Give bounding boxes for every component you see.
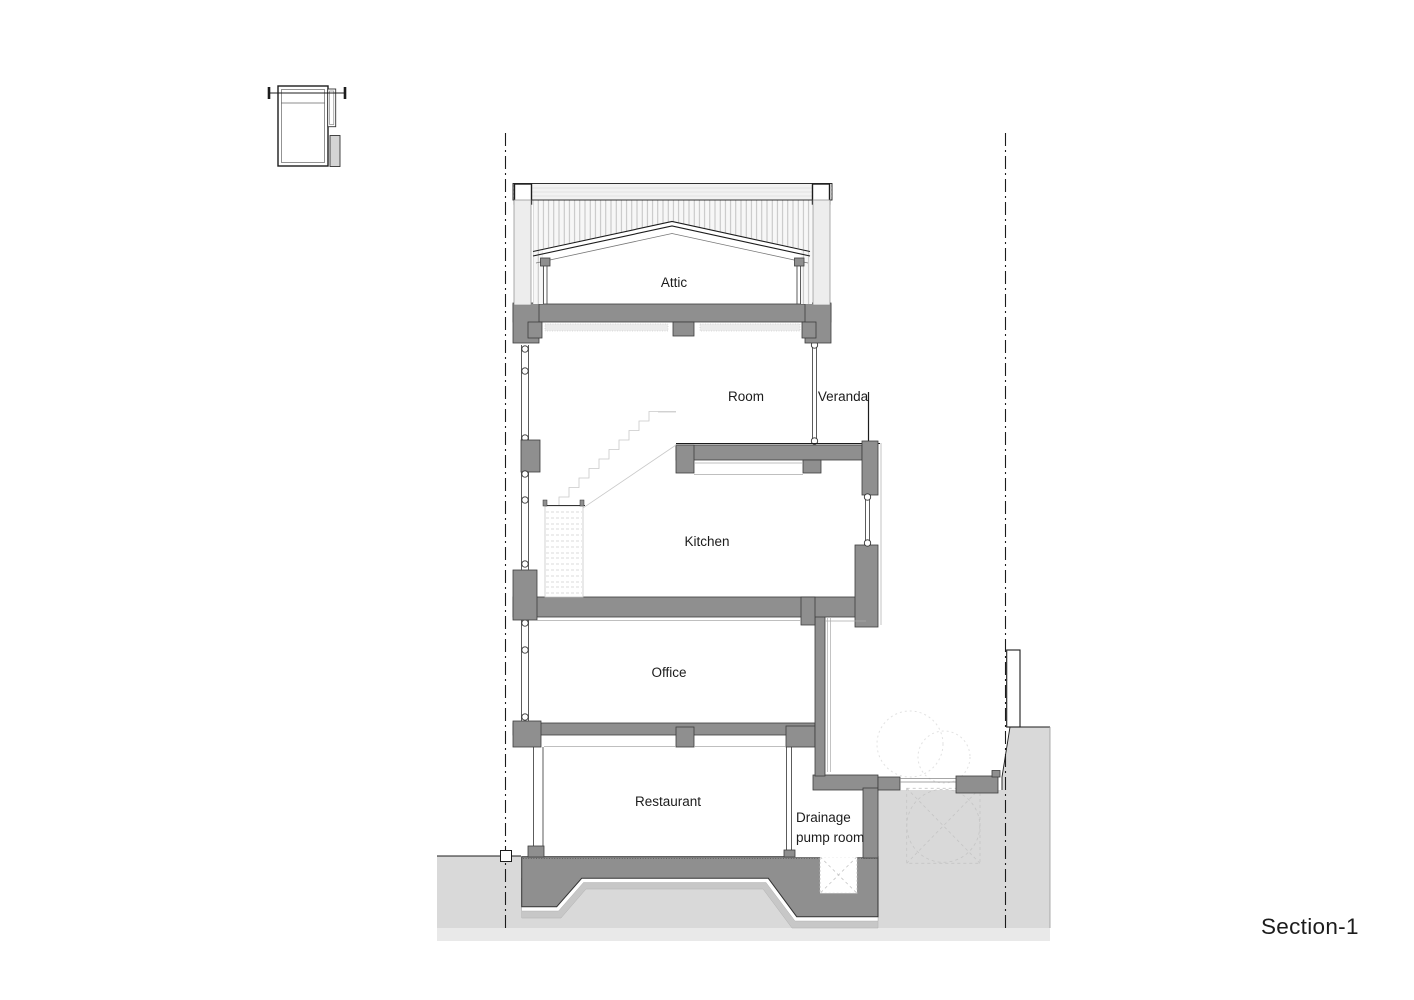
ground-left — [437, 856, 521, 928]
veranda-label: Veranda — [818, 389, 869, 404]
attic-label: Attic — [661, 275, 688, 290]
section-drawing-sheet: Attic Room Veranda Kitchen Office Restau… — [0, 0, 1414, 1000]
key-plan — [268, 86, 346, 167]
ground-bottom-strip — [437, 928, 1050, 941]
stair-lower-flight — [543, 500, 585, 597]
sump-pit — [820, 857, 857, 894]
parapet-wall-right — [813, 200, 830, 305]
office-level — [522, 611, 831, 776]
section-drawing: Attic Room Veranda Kitchen Office Restau… — [0, 0, 1414, 1000]
restaurant-level — [528, 728, 795, 857]
left-window-wall-2f — [522, 620, 529, 721]
drainage-label-line1: Drainage — [796, 810, 851, 825]
left-window-wall-3f — [521, 345, 540, 570]
kitchen-label: Kitchen — [684, 534, 729, 549]
fence — [1007, 650, 1020, 727]
attic-floor-slab — [513, 303, 831, 343]
room-window-right — [811, 342, 817, 444]
office-floor-slab — [513, 721, 815, 747]
office-label: Office — [651, 665, 686, 680]
room-label: Room — [728, 389, 764, 404]
tree — [877, 711, 970, 783]
restaurant-label: Restaurant — [635, 794, 701, 809]
pump-room-right-wall — [863, 788, 878, 858]
drainage-label-line2: pump room — [796, 830, 864, 845]
left-wall-1f — [528, 747, 544, 857]
parapet-wall-left — [514, 200, 531, 305]
ground-right — [878, 727, 1050, 928]
room-floor-slab — [676, 444, 880, 475]
ground-level-marker — [501, 851, 512, 862]
drawing-title: Section-1 — [1261, 914, 1359, 939]
parapet-band — [513, 184, 832, 201]
